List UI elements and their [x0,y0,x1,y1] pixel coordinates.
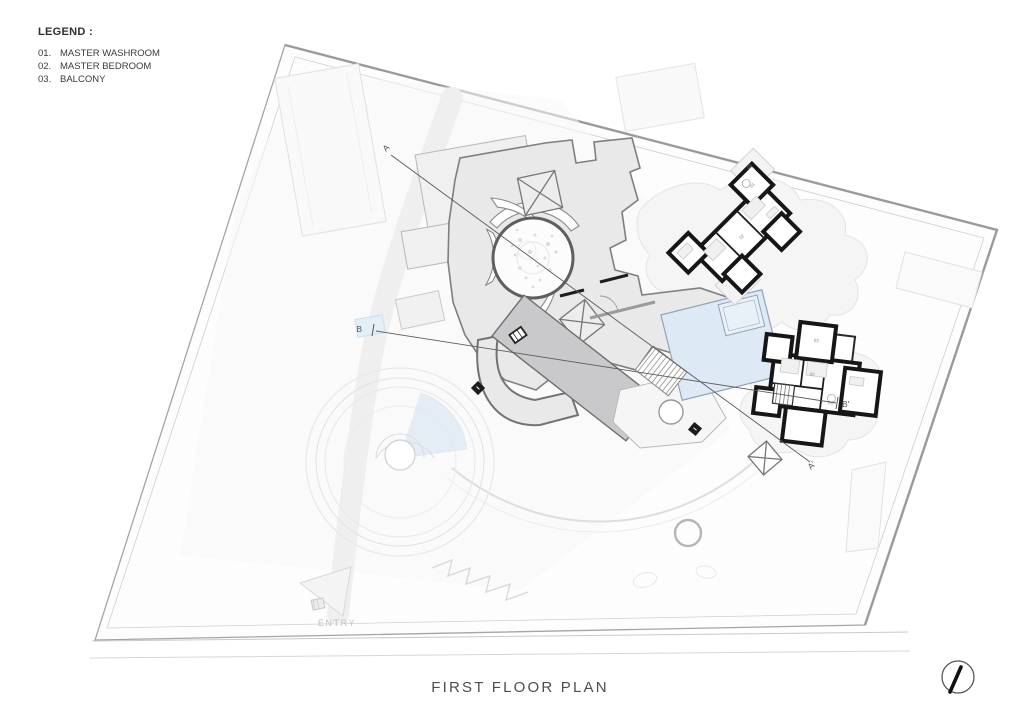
legend-item: 03. BALCONY [38,73,160,86]
courtyard [493,218,573,298]
legend-item-label: BALCONY [60,73,105,86]
section-label-b: B [356,324,362,334]
entry-label: ENTRY [318,618,356,628]
terrace-circle [659,400,683,424]
legend-item: 01. MASTER WASHROOM [38,47,160,60]
entry-hatch-box [311,598,325,610]
faint-structure-n [616,63,704,131]
legend-item-num: 01. [38,47,60,60]
section-label-b-prime: B' [842,399,850,409]
legend-item: 02. MASTER BEDROOM [38,60,160,73]
garden-center [385,440,415,470]
page-title: FIRST FLOOR PLAN [431,679,608,696]
legend-item-num: 02. [38,60,60,73]
floor-plan-page: 02 01 03 [0,0,1024,724]
legend-item-label: MASTER BEDROOM [60,60,151,73]
legend-item-num: 03. [38,73,60,86]
road-line-2 [90,651,910,658]
legend-title: LEGEND : [38,26,160,38]
legend: LEGEND : 01. MASTER WASHROOM 02. MASTER … [38,26,160,86]
legend-item-label: MASTER WASHROOM [60,47,160,60]
plan-canvas: 02 01 03 [0,0,1024,724]
tree-ring [675,520,701,546]
north-arrow-icon [942,661,974,693]
